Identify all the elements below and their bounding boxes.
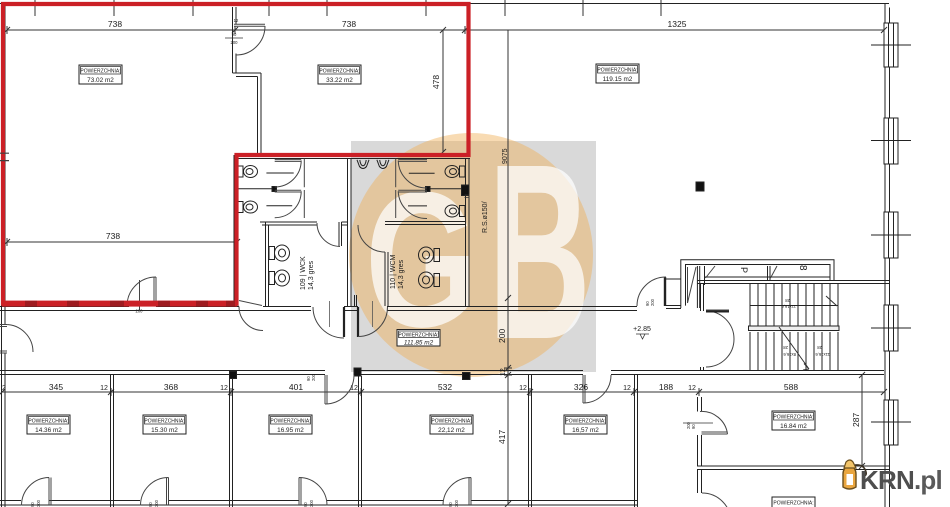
svg-text:11x16,6: 11x16,6 — [781, 304, 796, 309]
svg-text:11x16,6: 11x16,6 — [815, 352, 830, 357]
svg-text:8x16,6: 8x16,6 — [783, 352, 796, 357]
svg-text:738: 738 — [342, 19, 356, 29]
svg-text:12: 12 — [350, 385, 358, 392]
svg-text:12: 12 — [623, 385, 631, 392]
svg-text:110 | WCM: 110 | WCM — [390, 254, 397, 289]
svg-text:14,3 gres: 14,3 gres — [398, 259, 405, 289]
svg-text:188: 188 — [659, 382, 673, 392]
svg-text:12: 12 — [688, 385, 696, 392]
svg-text:12: 12 — [500, 368, 507, 376]
svg-text:33.22 m2: 33.22 m2 — [326, 77, 353, 84]
svg-text:9075: 9075 — [502, 148, 509, 164]
svg-text:16,57 m2: 16,57 m2 — [572, 427, 599, 434]
svg-text:90: 90 — [691, 424, 696, 429]
svg-text:287: 287 — [851, 413, 861, 427]
svg-text:73.02 m2: 73.02 m2 — [87, 77, 114, 84]
svg-text:POWIERZCHNIA:: POWIERZCHNIA: — [319, 69, 359, 75]
svg-text:P: P — [739, 267, 749, 273]
svg-text:16.84 m2: 16.84 m2 — [780, 423, 807, 430]
svg-text:200: 200 — [136, 309, 144, 314]
svg-text:POWIERZCHNIA:: POWIERZCHNIA: — [398, 332, 438, 338]
svg-text:22,12 m2: 22,12 m2 — [438, 427, 465, 434]
svg-text:POWIERZCHNIA:: POWIERZCHNIA: — [773, 415, 813, 421]
svg-text:200: 200 — [311, 373, 316, 381]
svg-text:326: 326 — [574, 382, 588, 392]
svg-text:200: 200 — [154, 499, 159, 507]
svg-text:90: 90 — [232, 32, 237, 37]
svg-text:90: 90 — [448, 502, 453, 507]
svg-text:90: 90 — [30, 502, 35, 507]
svg-text:200: 200 — [454, 499, 459, 507]
svg-text:401: 401 — [289, 382, 303, 392]
svg-text:28: 28 — [817, 345, 822, 350]
svg-text:POWIERZCHNIA:: POWIERZCHNIA: — [773, 501, 813, 507]
svg-text:417: 417 — [497, 430, 507, 444]
svg-text:8: 8 — [797, 265, 808, 271]
svg-text:200: 200 — [309, 499, 314, 507]
svg-text:200: 200 — [497, 329, 507, 343]
svg-text:15.30 m2: 15.30 m2 — [151, 427, 178, 434]
svg-text:2: 2 — [2, 385, 6, 392]
svg-text:90: 90 — [303, 502, 308, 507]
svg-text:POWIERZCHNIA:: POWIERZCHNIA: — [80, 69, 120, 75]
svg-text:POWIERZCHNIA:: POWIERZCHNIA: — [28, 419, 68, 425]
svg-text:109 | WCK: 109 | WCK — [300, 256, 307, 290]
svg-text:28: 28 — [783, 345, 788, 350]
svg-text:12: 12 — [234, 18, 239, 23]
svg-text:POWIERZCHNIA:: POWIERZCHNIA: — [270, 419, 310, 425]
svg-text:12: 12 — [220, 385, 228, 392]
svg-text:200: 200 — [650, 298, 655, 306]
svg-text:12: 12 — [100, 385, 108, 392]
svg-text:POWIERZCHNIA:: POWIERZCHNIA: — [144, 419, 184, 425]
svg-text:588: 588 — [784, 382, 798, 392]
svg-text:14,3 gres: 14,3 gres — [308, 260, 315, 290]
svg-text:119.15 m2: 119.15 m2 — [603, 76, 633, 83]
svg-text:12: 12 — [519, 385, 527, 392]
svg-text:738: 738 — [108, 19, 122, 29]
svg-text:90: 90 — [148, 502, 153, 507]
svg-text:16.95 m2: 16.95 m2 — [277, 427, 304, 434]
svg-text:28: 28 — [785, 298, 790, 303]
svg-text:532: 532 — [438, 382, 452, 392]
svg-text:368: 368 — [164, 382, 178, 392]
svg-text:POWIERZCHNIA:: POWIERZCHNIA: — [431, 419, 471, 425]
svg-text:345: 345 — [49, 382, 63, 392]
svg-text:POWIERZCHNIA:: POWIERZCHNIA: — [597, 68, 637, 74]
svg-text:14.36 m2: 14.36 m2 — [35, 427, 62, 434]
svg-text:KRN.pl: KRN.pl — [860, 465, 942, 495]
svg-text:478: 478 — [431, 75, 441, 89]
svg-text:200: 200 — [231, 40, 239, 45]
svg-text:POWIERZCHNIA:: POWIERZCHNIA: — [565, 419, 605, 425]
svg-text:200: 200 — [36, 499, 41, 507]
svg-text:111.85 m2: 111.85 m2 — [404, 339, 434, 346]
svg-text:738: 738 — [106, 231, 120, 241]
svg-text:+2.85: +2.85 — [633, 326, 651, 333]
svg-text:1325: 1325 — [668, 19, 687, 29]
svg-text:R.S.ø150/: R.S.ø150/ — [482, 201, 489, 233]
